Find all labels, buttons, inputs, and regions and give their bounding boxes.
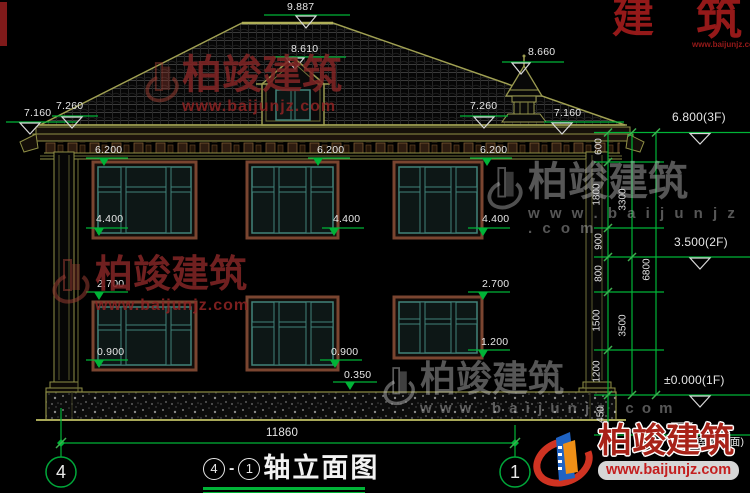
dim-sill2f-2: 4.400 xyxy=(333,214,360,225)
dim-head1f-1: 2.700 xyxy=(97,279,124,290)
dim-turret-level: 8.660 xyxy=(528,47,555,58)
window-2f-right xyxy=(394,162,482,238)
chain-1200: 1200 xyxy=(592,350,603,394)
hip-roof xyxy=(40,23,625,125)
chain-1800: 1800 xyxy=(592,173,603,217)
dim-head1f-2: 2.700 xyxy=(482,279,509,290)
dim-sill1f-right: 1.200 xyxy=(481,337,508,348)
level-3f: 6.800(3F) xyxy=(672,112,726,123)
watermark-fragment-url: www.baijunjz.com xyxy=(692,40,750,50)
chain-6800: 6800 xyxy=(642,248,653,292)
watermark-fragment-url-text: www.baijunjz.com xyxy=(692,40,750,49)
watermark-fragment-char: 建 xyxy=(612,0,658,42)
title-dash: - xyxy=(229,460,234,478)
title-axis-from-bubble: 4 xyxy=(203,458,225,480)
dim-head2f-2: 6.200 xyxy=(317,145,344,156)
axis-number-left: 4 xyxy=(49,462,73,483)
foundation xyxy=(36,392,626,420)
brand-logo-text: 柏竣建筑 xyxy=(598,424,739,458)
watermark-fragment-top-right-1: 建 xyxy=(612,0,658,42)
watermark-fragment-left-edge xyxy=(0,2,7,46)
drawing-title: 4 - 1 轴立面图 xyxy=(203,455,379,482)
dim-sill1f-1: 0.900 xyxy=(97,347,124,358)
dim-eave-left-inner: 7.260 xyxy=(56,101,83,112)
axis-number-right: 1 xyxy=(503,462,527,483)
window-1f-right xyxy=(394,297,482,358)
title-text: 轴立面图 xyxy=(263,455,379,482)
elevation-linework xyxy=(0,0,750,493)
dim-head2f-3: 6.200 xyxy=(480,145,507,156)
chain-600: 600 xyxy=(594,125,605,169)
title-axis-to-bubble: 1 xyxy=(238,458,260,480)
dim-dormer-level: 8.610 xyxy=(291,44,318,55)
title-underline-thick xyxy=(203,487,365,490)
dim-sill1f-2: 0.900 xyxy=(331,347,358,358)
dim-eave-right-outer: 7.160 xyxy=(554,108,581,119)
chain-3500: 3500 xyxy=(618,304,629,348)
dim-eave-right-inner: 7.260 xyxy=(470,101,497,112)
level-1f: ±0.000(1F) xyxy=(664,375,725,386)
chain-800: 800 xyxy=(594,252,605,296)
watermark-logo-right xyxy=(485,168,524,212)
level-2f: 3.500(2F) xyxy=(674,237,728,248)
chain-3300: 3300 xyxy=(618,178,629,222)
window-2f-middle xyxy=(247,162,338,238)
chain-1500: 1500 xyxy=(592,299,603,343)
dim-eave-left-outer: 7.160 xyxy=(24,108,51,119)
dim-head2f-1: 6.200 xyxy=(95,145,122,156)
dim-sill2f-1: 4.400 xyxy=(96,214,123,225)
brand-logo-url: www.baijunjz.com xyxy=(598,461,739,480)
dim-ridge-level: 9.887 xyxy=(287,2,314,13)
dim-total-width: 11860 xyxy=(266,428,298,439)
elevation-drawing-canvas: 9.887 8.610 8.660 7.160 7.260 7.260 7.16… xyxy=(0,0,750,493)
brand-logo: 柏竣建筑 www.baijunjz.com xyxy=(530,424,739,480)
dim-step: 0.350 xyxy=(344,370,371,381)
dim-sill2f-3: 4.400 xyxy=(482,214,509,225)
window-2f-left xyxy=(93,162,196,238)
window-1f-middle xyxy=(247,297,338,370)
